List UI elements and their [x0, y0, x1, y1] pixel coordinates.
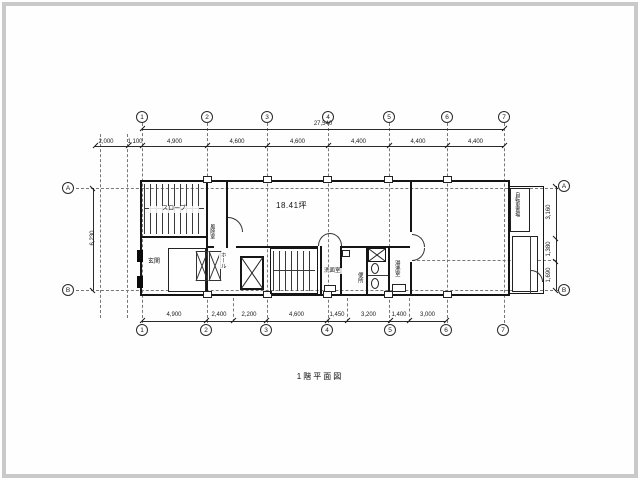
main-stair-landing-line [273, 270, 315, 271]
wall-toilet-right [388, 246, 390, 294]
sink-fixture [342, 250, 350, 257]
sheet-title: 1階平面図 [280, 371, 360, 382]
annex-partition [530, 236, 531, 294]
wall-washroom-left [320, 246, 322, 294]
label-washroom: 洗面室 [323, 268, 342, 274]
site-boundary-line-1 [100, 134, 101, 318]
grid-bubble-bottom-1: 1 [136, 324, 148, 336]
column [323, 176, 332, 183]
dim-bottom-3: 2,200 [231, 312, 267, 319]
label-floor-area: 18.41坪 [276, 200, 307, 211]
dim-line-top-spans [95, 146, 504, 147]
grid-bubble-right-b: B [558, 284, 570, 296]
floor-plan-drawing: 1 2 3 4 5 6 7 1 2 3 4 5 6 7 A B A B 27,5… [0, 0, 640, 480]
column [203, 291, 212, 298]
wall-under-ramp [140, 236, 208, 238]
elevator-x-icon [240, 256, 264, 290]
dim-bottom-8: 3,000 [409, 312, 446, 319]
grid-bubble-bottom-3: 3 [260, 324, 272, 336]
column [263, 176, 272, 183]
dim-top-overall: 27,540 [142, 121, 504, 128]
kitchen-counter [392, 284, 406, 292]
entrance-door-post [137, 276, 143, 288]
dim-bottom-6: 3,200 [347, 312, 390, 319]
double-door-bowtie-icon [196, 251, 208, 281]
site-boundary-line-2 [127, 134, 128, 318]
wall-vestibule-right [226, 180, 228, 248]
toilet-stall-divider [368, 275, 388, 276]
wall-bigroom-partition-lower [410, 262, 412, 294]
column [384, 291, 393, 298]
dim-top-span-1: 4,900 [142, 139, 207, 146]
bicycle-parking-bay [510, 188, 530, 232]
grid-bubble-left-a: A [62, 182, 74, 194]
label-ramp: スロープ [149, 206, 199, 213]
dim-line-bottom [142, 321, 446, 322]
label-bicycle-parking: 自転車置場 [514, 192, 519, 217]
label-toilet: 便所 [356, 272, 362, 283]
washbasin-fixture [324, 285, 336, 292]
entrance-door-post [137, 250, 143, 262]
label-kitchenette: 湯沸室 [393, 260, 399, 277]
dim-bottom-1: 4,900 [142, 312, 206, 319]
dim-line-top-overall [142, 129, 504, 130]
grid-bubble-bottom-7: 7 [497, 324, 509, 336]
toilet-fixture [371, 278, 379, 289]
dim-bottom-4: 4,600 [266, 312, 327, 319]
dim-top-span-2: 4,600 [207, 139, 267, 146]
grid-bubble-bottom-5: 5 [384, 324, 396, 336]
label-vestibule: 風除室 [209, 224, 214, 239]
wall-corridor-seg-1 [208, 246, 214, 248]
column [203, 176, 212, 183]
dim-right-3: 1,690 [545, 257, 553, 293]
column [443, 176, 452, 183]
dim-top-span-3: 4,600 [267, 139, 328, 146]
label-entrance: 玄関 [147, 259, 161, 266]
dim-left-overall: 6,230 [89, 218, 97, 258]
label-hall: ホール [219, 252, 225, 269]
dim-right-1: 3,160 [545, 194, 553, 230]
grid-bubble-bottom-6: 6 [440, 324, 452, 336]
grid-bubble-right-a: A [558, 180, 570, 192]
main-stair-treads [273, 251, 315, 291]
wall-bigroom-partition-upper [410, 180, 412, 232]
dim-top-span-5: 4,400 [389, 139, 447, 146]
dim-top-span-6: 4,400 [447, 139, 504, 146]
grid-bubble-bottom-4: 4 [321, 324, 333, 336]
toilet-fixture [371, 263, 379, 274]
dim-top-span-4: 4,400 [328, 139, 389, 146]
dim-top-offset-1: 2,000 [88, 139, 124, 146]
pipe-shaft-x-icon [368, 248, 386, 262]
grid-bubble-left-b: B [62, 284, 74, 296]
external-stair [512, 236, 538, 292]
grid-bubble-bottom-2: 2 [200, 324, 212, 336]
column [384, 176, 393, 183]
column [323, 291, 332, 298]
column [443, 291, 452, 298]
